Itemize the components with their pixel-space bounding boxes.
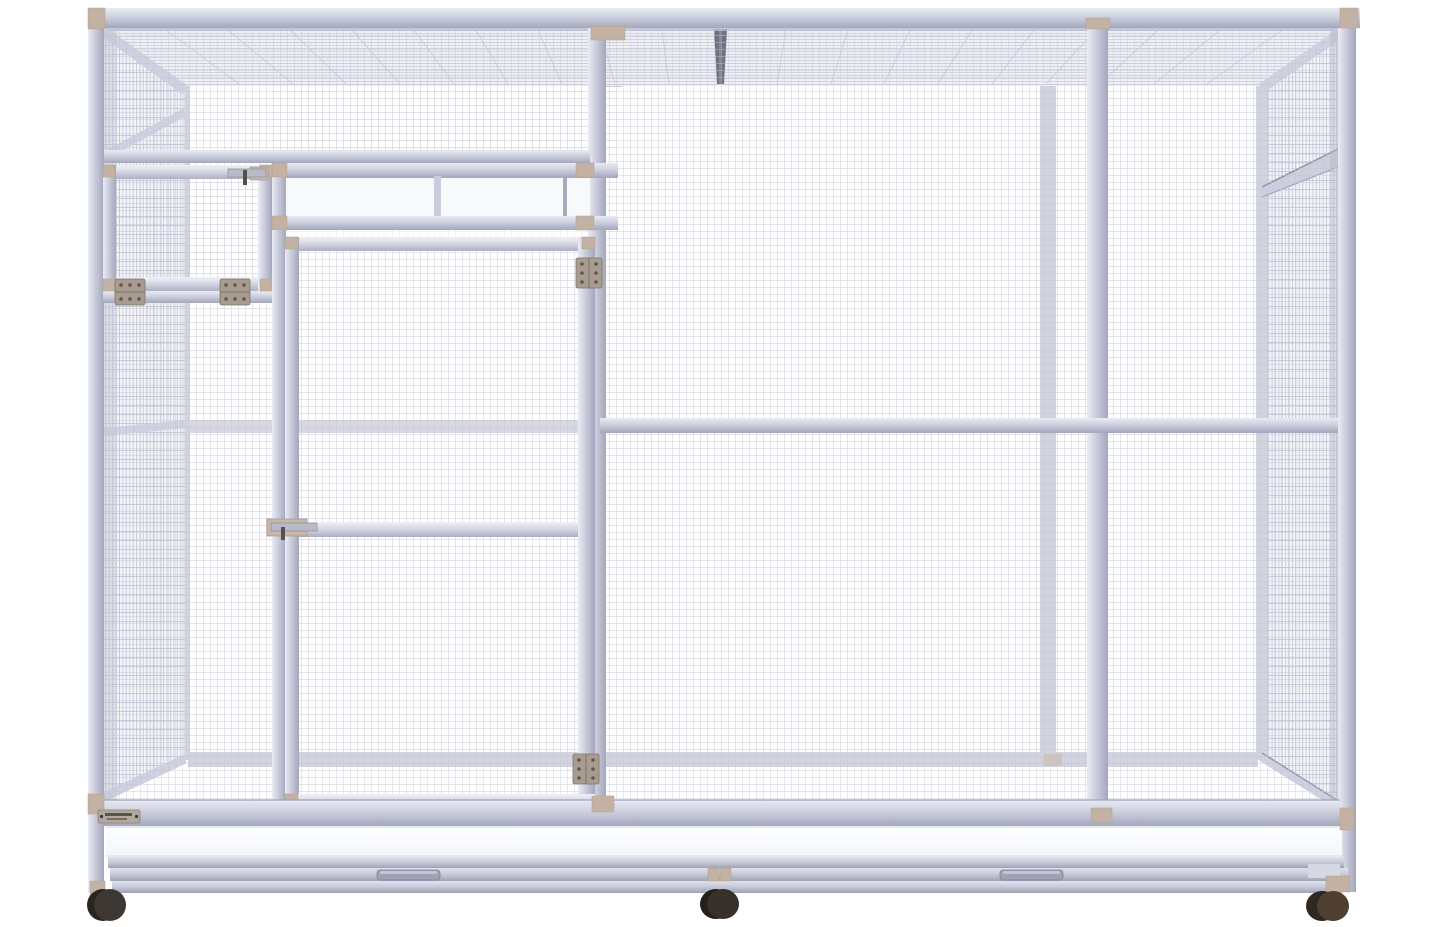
main-door (267, 237, 602, 810)
door-right-stile (578, 237, 595, 810)
base-frame (88, 794, 1354, 895)
front-mid-rail (600, 418, 1338, 433)
front-middle-band-mesh (272, 28, 590, 165)
post-base-connector (1340, 808, 1354, 830)
inner-post-top-connector (1086, 18, 1110, 29)
transom-window (272, 163, 618, 230)
hatch-left-stile (103, 165, 116, 291)
hatch-hinge-left (115, 279, 145, 305)
caster-wheels (87, 889, 1349, 921)
door-top-rail (285, 237, 595, 251)
window-mullion (563, 176, 567, 218)
front-band-rail (104, 150, 590, 163)
door-hinge-bottom (573, 754, 599, 784)
window-corner-cap (576, 163, 594, 177)
window-bottom-rail (272, 216, 618, 230)
pullout-tray-front (106, 826, 1342, 857)
base-joint-connector (720, 868, 731, 881)
door-jamb (272, 230, 286, 800)
wheel-left (87, 889, 126, 921)
base-joint-connector (708, 868, 719, 881)
window-corner-cap (272, 216, 287, 230)
window-corner-cap (576, 216, 594, 230)
hatch-right-stile (258, 165, 272, 291)
door-mid-rail (299, 522, 578, 537)
hatch-hinge-right (220, 279, 250, 305)
door-hinge-top (576, 258, 602, 288)
brand-nameplate (98, 810, 140, 823)
window-top-rail (272, 163, 618, 178)
window-pane (441, 178, 563, 216)
front-right-post (1338, 28, 1356, 892)
front-right-section-mesh (607, 28, 1338, 800)
window-pane (288, 178, 434, 216)
front-left-post (88, 28, 104, 893)
top-left-corner-cap (88, 8, 105, 29)
tray-handle-left (377, 870, 440, 880)
hatch-corner-cap (260, 279, 272, 291)
tray-handle-right (1000, 870, 1063, 880)
base-rail-upper (108, 857, 1344, 868)
wheel-center (700, 889, 739, 919)
wheel-right (1306, 891, 1349, 921)
hatch-corner-cap (103, 165, 115, 177)
aviary-product-image (0, 0, 1445, 927)
top-right-corner-cap (1340, 8, 1358, 28)
window-corner-cap (272, 163, 287, 177)
door-corner-cap (285, 237, 298, 249)
window-mullion (434, 176, 441, 218)
escape-hatch-door (103, 165, 272, 305)
aviary-cage-render (0, 0, 1445, 927)
post-base-connector (1091, 808, 1112, 822)
front-top-rail (88, 8, 1360, 28)
base-corner-connector (1326, 876, 1350, 892)
window-pane (567, 178, 590, 216)
hatch-corner-cap (103, 279, 115, 291)
door-corner-cap (582, 237, 595, 249)
post-base-connector (592, 796, 614, 812)
center-post-top-connector (591, 26, 625, 40)
bottom-front-rail (104, 800, 1340, 826)
